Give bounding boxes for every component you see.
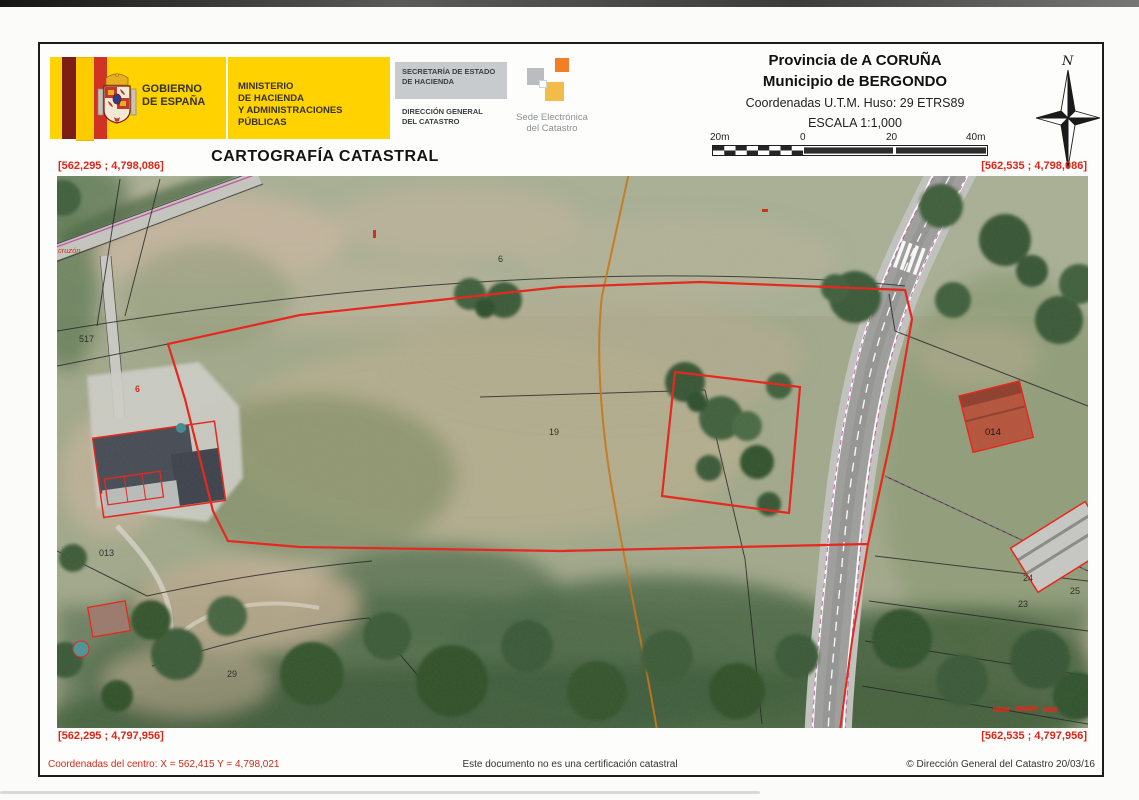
- footer-copyright: © Dirección General del Catastro 20/03/1…: [906, 759, 1095, 770]
- sede-electronica-logo: [525, 56, 581, 110]
- corner-coordinate-top-right: [562,535 ; 4,798,086]: [981, 160, 1087, 172]
- sede-square-yellow: [545, 82, 564, 101]
- scan-grain: [57, 176, 1088, 728]
- gobierno-line2: DE ESPAÑA: [142, 96, 205, 109]
- gobierno-label: GOBIERNO DE ESPAÑA: [142, 83, 205, 109]
- ministerio-label: MINISTERIO DE HACIENDA Y ADMINISTRACIONE…: [238, 81, 390, 129]
- footer-disclaimer: Este documento no es una certificación c…: [390, 759, 750, 770]
- corner-coordinate-bottom-right: [562,535 ; 4,797,956]: [981, 730, 1087, 742]
- flag-stripe-yellow: [76, 57, 94, 141]
- municipio-title: Municipio de BERGONDO: [705, 73, 1005, 90]
- coat-of-arms-icon: [94, 73, 140, 125]
- sede-line1: Sede Electrónica: [492, 112, 612, 123]
- ministerio-line2: DE HACIENDA: [238, 93, 390, 105]
- scalebar-label-20: 20: [886, 132, 897, 143]
- sede-square-orange: [555, 58, 569, 72]
- gobierno-logo: GOBIERNO DE ESPAÑA: [50, 57, 226, 139]
- corner-coordinate-bottom-left: [562,295 ; 4,797,956]: [58, 730, 164, 742]
- direccion-line2: DEL CATASTRO: [402, 117, 483, 127]
- north-arrow-icon: N: [1028, 52, 1110, 172]
- direccion-line1: DIRECCIÓN GENERAL: [402, 107, 483, 117]
- scalebar-label-0: 0: [800, 132, 806, 143]
- scalebar-label-40m: 40m: [966, 132, 985, 143]
- corner-coordinate-top-left: [562,295 ; 4,798,086]: [58, 160, 164, 172]
- aerial-cadastral-map: 517 013 19 6 24 23 25 29 014 6 cruzón: [57, 176, 1088, 728]
- ministerio-logo: MINISTERIO DE HACIENDA Y ADMINISTRACIONE…: [228, 57, 390, 139]
- sede-square-white: [539, 80, 547, 88]
- secretaria-line2: DE HACIENDA: [402, 77, 507, 87]
- ministerio-line1: MINISTERIO: [238, 81, 390, 93]
- secretaria-label: SECRETARÍA DE ESTADO DE HACIENDA: [395, 62, 507, 99]
- scanned-cadastral-document: GOBIERNO DE ESPAÑA MINISTERIO DE HACIEND…: [0, 0, 1139, 800]
- north-letter: N: [1061, 54, 1074, 69]
- secretaria-line1: SECRETARÍA DE ESTADO: [402, 67, 507, 77]
- scale-label: ESCALA 1:1,000: [705, 116, 1005, 130]
- map-imagery: 517 013 19 6 24 23 25 29 014 6 cruzón: [57, 176, 1088, 728]
- footer-center-coordinates: Coordenadas del centro: X = 562,415 Y = …: [48, 759, 279, 770]
- utm-coordinates-label: Coordenadas U.T.M. Huso: 29 ETRS89: [705, 96, 1005, 110]
- direccion-label: DIRECCIÓN GENERAL DEL CATASTRO: [402, 107, 483, 127]
- scalebar-label-20m-left: 20m: [710, 132, 729, 143]
- scan-edge-artifact: [0, 0, 1139, 7]
- flag-stripe-red1: [62, 57, 76, 139]
- gobierno-line1: GOBIERNO: [142, 83, 205, 96]
- ministerio-line3: Y ADMINISTRACIONES PÚBLICAS: [238, 105, 390, 129]
- provincia-title: Provincia de A CORUÑA: [705, 52, 1005, 69]
- scan-edge-artifact-bottom: [0, 791, 760, 794]
- page-title: CARTOGRAFÍA CATASTRAL: [160, 148, 490, 166]
- sede-label: Sede Electrónica del Catastro: [492, 112, 612, 134]
- sede-line2: del Catastro: [492, 123, 612, 134]
- scale-bar: [712, 145, 989, 157]
